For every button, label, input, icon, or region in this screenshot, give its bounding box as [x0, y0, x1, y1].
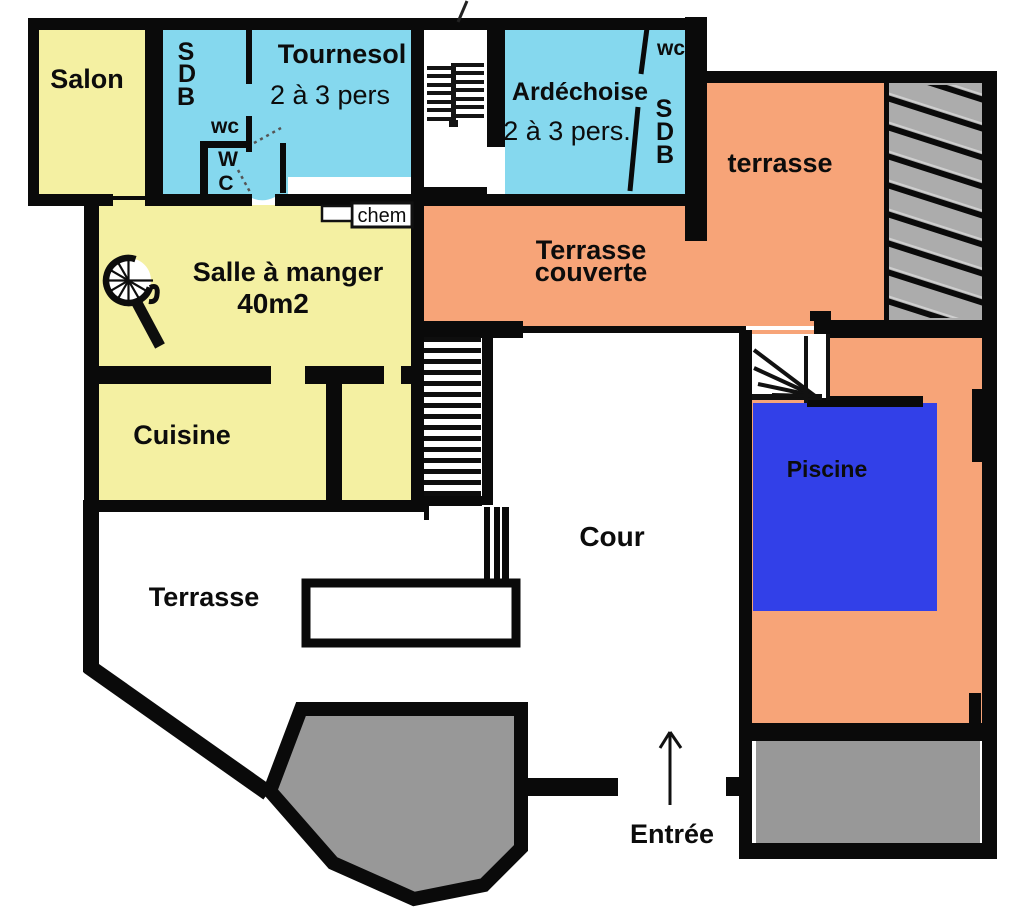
svg-text:wc: wc [656, 37, 685, 60]
svg-text:Entrée: Entrée [630, 819, 714, 849]
svg-text:C: C [218, 172, 233, 195]
svg-text:Salle à manger: Salle à manger [193, 257, 384, 287]
svg-text:Tournesol: Tournesol [278, 39, 407, 69]
svg-text:Ardéchoise: Ardéchoise [512, 78, 648, 106]
svg-text:Cour: Cour [579, 521, 644, 552]
svg-text:wc: wc [210, 115, 239, 138]
svg-text:Piscine: Piscine [787, 456, 868, 482]
svg-text:2 à 3 pers: 2 à 3 pers [270, 80, 390, 110]
svg-text:Salon: Salon [50, 64, 124, 94]
svg-text:couverte: couverte [535, 257, 648, 287]
svg-text:chem: chem [358, 205, 407, 227]
svg-text:Terrasse: Terrasse [149, 582, 260, 612]
svg-text:W: W [218, 148, 238, 171]
svg-text:2 à 3 pers.: 2 à 3 pers. [503, 116, 631, 146]
svg-text:40m2: 40m2 [237, 288, 309, 319]
svg-text:B: B [656, 141, 674, 169]
svg-text:B: B [177, 83, 195, 111]
svg-text:terrasse: terrasse [727, 148, 832, 178]
svg-text:Cuisine: Cuisine [133, 420, 231, 450]
